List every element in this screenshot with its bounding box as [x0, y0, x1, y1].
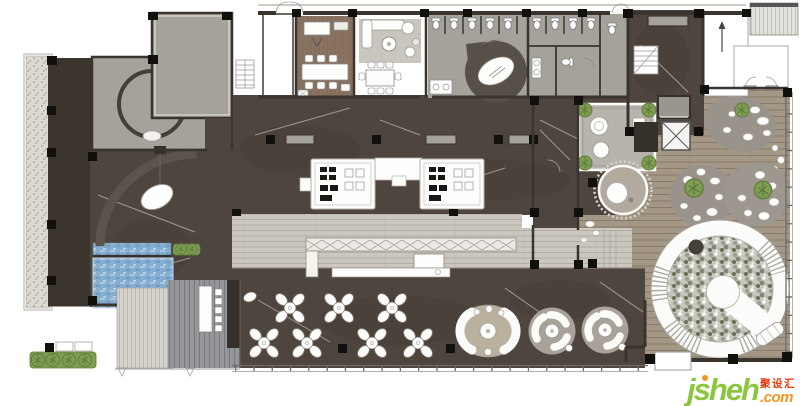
lounge-circle-1 [529, 308, 576, 355]
dining-table-8 [366, 70, 394, 86]
floor-plan [0, 0, 800, 406]
side-vestibule [655, 352, 691, 370]
floor-plan-screenshot: jsheh 聚设汇 .com [0, 0, 800, 406]
display-island-left [311, 159, 375, 209]
entrance-canopy [750, 3, 798, 35]
garden-stone [689, 240, 704, 255]
logo-chinese: 聚设汇 [760, 379, 796, 390]
logo-j-dot-icon [702, 375, 708, 381]
logo-tld: .com [760, 390, 793, 405]
vip-lounge-room [358, 18, 422, 94]
hall-closet [648, 16, 688, 26]
logo-brand: jsheh [687, 374, 758, 405]
gravel-strip [24, 54, 52, 310]
street-planter [30, 342, 96, 368]
bar-counter [199, 286, 212, 332]
plant [578, 103, 592, 117]
entrance-vestibule [734, 46, 788, 89]
exterior-stair [236, 60, 254, 88]
meeting-table [302, 64, 348, 80]
landscape-rug-3 [724, 162, 790, 226]
stairwell [634, 46, 658, 74]
stair-lobby-room [152, 13, 232, 118]
restroom-right [528, 14, 628, 96]
lightwell-room [263, 14, 293, 98]
left-wing-floor [48, 58, 92, 306]
booth-oval [457, 305, 519, 357]
lounge-circle-2 [582, 307, 629, 354]
garden-platform [707, 276, 740, 309]
office-room [296, 16, 354, 98]
watermark-logo: jsheh 聚设汇 .com [687, 374, 796, 405]
display-island-right [420, 159, 484, 209]
